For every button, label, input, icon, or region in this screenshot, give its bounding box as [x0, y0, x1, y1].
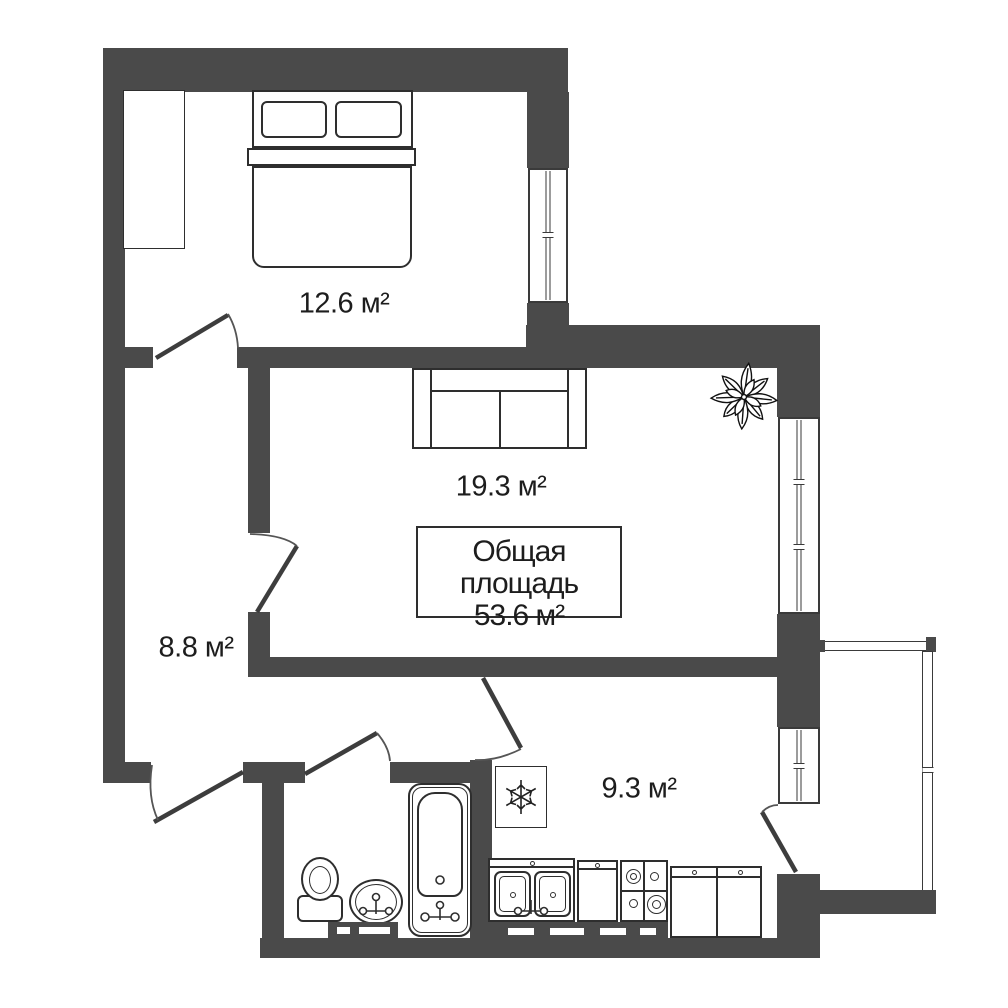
- hall-area-label: 8.8 м²: [159, 632, 234, 665]
- stove: [620, 860, 668, 922]
- sink-basin: [534, 871, 571, 917]
- wardrobe: [123, 90, 185, 249]
- balcony-glazing-right: [922, 651, 933, 891]
- wall: [243, 762, 305, 783]
- bed-pillow: [335, 101, 402, 138]
- total-area-value: 53.6 м²: [418, 600, 620, 632]
- total-area-box: Общая площадь 53.6 м²: [416, 526, 622, 618]
- plinth-slot: [600, 928, 626, 935]
- sink-basin: [494, 871, 531, 917]
- wall: [103, 48, 568, 92]
- window-tick: [794, 479, 805, 485]
- door-bathroom: [305, 733, 390, 774]
- counter-edge: [672, 876, 760, 878]
- bedroom-area-label: 12.6 м²: [299, 288, 390, 321]
- window-bedroom: [528, 168, 568, 303]
- window-tick: [922, 767, 933, 773]
- counter-edge: [579, 868, 616, 870]
- living-area-label: 19.3 м²: [456, 471, 547, 504]
- stove-burner: [652, 900, 661, 909]
- plant-icon: [711, 363, 777, 430]
- toilet-bowl-inner: [309, 866, 331, 894]
- balcony-glazing-top: [819, 641, 936, 651]
- counter-knob: [595, 863, 600, 868]
- door-entrance: [150, 765, 243, 822]
- window-kitchen: [778, 727, 820, 804]
- stove-burner: [630, 873, 637, 880]
- door-living: [250, 534, 297, 612]
- sink-drain: [550, 892, 556, 898]
- door-kitchen: [475, 678, 521, 760]
- kitchen-plinth: [488, 922, 668, 940]
- stove-grid: [622, 890, 666, 892]
- wall: [777, 614, 820, 727]
- washbasin-inner: [355, 884, 397, 920]
- counter-knob: [738, 870, 743, 875]
- wall: [237, 347, 569, 368]
- sofa-seat-split: [499, 390, 501, 447]
- sink-drain: [510, 892, 516, 898]
- bathtub: [408, 783, 472, 937]
- wall: [260, 938, 820, 958]
- balcony-corner: [819, 640, 825, 652]
- window-tick: [543, 232, 554, 238]
- bed-blanket: [252, 166, 412, 268]
- stove-burner: [650, 872, 659, 881]
- bed-pillow: [261, 101, 327, 138]
- wall: [526, 325, 820, 368]
- wall: [248, 657, 777, 677]
- window-living: [778, 417, 820, 614]
- counter-knob: [692, 870, 697, 875]
- door-bedroom: [156, 314, 238, 358]
- wall: [103, 92, 125, 762]
- balcony-corner: [926, 637, 936, 652]
- total-area-title: Общая площадь: [418, 536, 620, 600]
- plinth-slot: [550, 928, 584, 935]
- wall: [103, 762, 151, 783]
- duct-slot: [337, 927, 350, 934]
- plinth-slot: [640, 928, 656, 935]
- kitchen-cabinet-right: [670, 866, 762, 938]
- bathroom-duct: [328, 922, 398, 940]
- stove-burner: [629, 899, 638, 908]
- door-balcony: [762, 805, 796, 872]
- kitchen-sink-unit: [488, 858, 575, 922]
- window-tick: [794, 544, 805, 550]
- sofa-armrest: [567, 370, 569, 447]
- kitchen-area-label: 9.3 м²: [602, 773, 677, 806]
- wall: [777, 368, 820, 417]
- wall: [248, 368, 270, 533]
- counter-knob: [530, 861, 535, 866]
- bed-frame: [247, 148, 416, 166]
- counter-edge: [490, 866, 573, 868]
- fridge: [495, 766, 547, 828]
- kitchen-cabinet: [577, 860, 618, 922]
- duct-slot: [359, 927, 390, 934]
- window-mullion: [797, 420, 802, 611]
- sofa-armrest: [430, 370, 432, 447]
- plinth-slot: [508, 928, 534, 935]
- wall: [262, 783, 284, 958]
- wall: [103, 347, 153, 368]
- window-tick: [794, 763, 805, 769]
- sofa: [412, 368, 587, 449]
- floor-plan: 12.6 м² 19.3 м² 8.8 м² 9.3 м² Общая площ…: [0, 0, 1008, 1008]
- wall: [527, 92, 569, 168]
- bathtub-basin: [417, 792, 463, 897]
- cabinet-split: [716, 868, 718, 936]
- balcony-wall-bottom: [819, 890, 936, 914]
